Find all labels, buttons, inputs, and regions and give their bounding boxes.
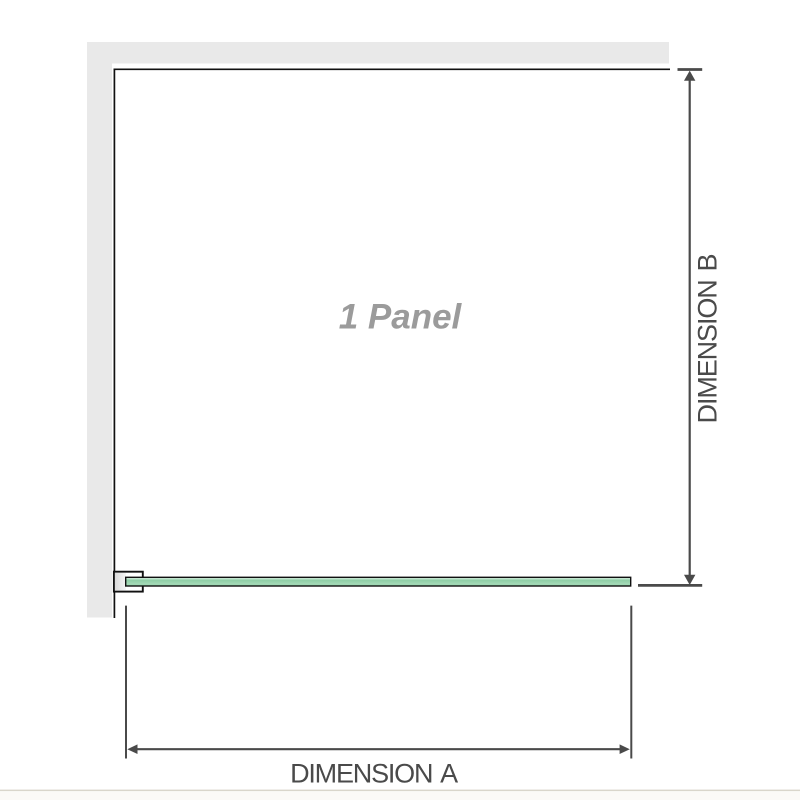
svg-text:DIMENSION B: DIMENSION B [693,254,723,423]
svg-text:DIMENSION A: DIMENSION A [290,759,458,789]
svg-text:1 Panel: 1 Panel [339,298,463,337]
